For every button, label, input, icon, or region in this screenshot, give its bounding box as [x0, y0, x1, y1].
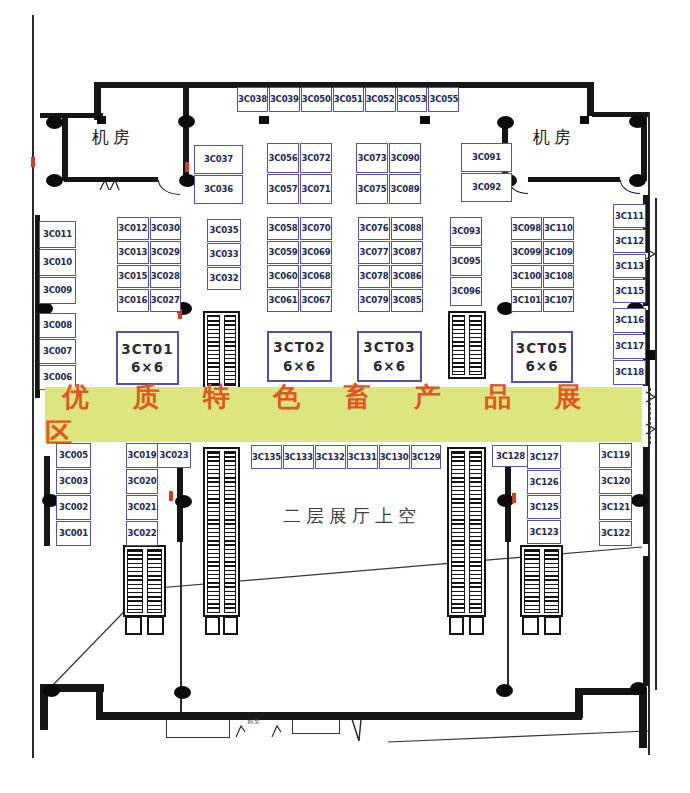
- booth-group: 3C111 3C112 3C113 3C115: [613, 204, 646, 303]
- column: [496, 684, 513, 697]
- booth-cell: 3C029: [150, 241, 182, 264]
- column: [46, 116, 63, 129]
- machine-room-label: 机房: [92, 126, 134, 149]
- booth-cell: 3C131: [347, 445, 378, 469]
- booth-cell: 3C077: [358, 241, 390, 264]
- escalator-base: [205, 616, 238, 635]
- fire-point-marker: [185, 162, 189, 172]
- booth-cell: 3C055: [428, 87, 459, 112]
- booth-cell: 3C003: [56, 469, 91, 494]
- booth-group: 3C073 3C090 3C075 3C089: [356, 143, 421, 204]
- booth-cell: 3C098: [511, 217, 542, 240]
- booth-cell: 3C127: [527, 445, 561, 469]
- booth-cell: 3C009: [39, 277, 76, 304]
- booth-group-top: 3C038 3C039 3C050 3C051 3C052 3C053 3C05…: [237, 87, 449, 112]
- column: [174, 686, 191, 699]
- booth-group: 3C093 3C095 3C096: [450, 217, 482, 306]
- booth-cell: 3C122: [599, 521, 632, 546]
- wall-stub: [580, 116, 589, 124]
- floor-plan: 机房 机房 3C038 3C039 3C050 3C051 3C052 3C05…: [0, 0, 690, 793]
- booth-cell: 3C078: [358, 265, 390, 288]
- booth-cell: 3C113: [613, 254, 646, 278]
- entry-recess: [166, 720, 230, 738]
- wall: [62, 117, 68, 181]
- column: [178, 115, 195, 128]
- column: [497, 116, 514, 129]
- booth-cell: 3C089: [389, 174, 421, 204]
- wall: [64, 177, 158, 182]
- booth-cell: 3C095: [450, 247, 482, 276]
- table-booth-id: 3CT05: [516, 339, 568, 357]
- booth-cell: 3C057: [267, 174, 299, 204]
- booth-cell: 3C036: [194, 175, 243, 204]
- booth-cell: 3C012: [117, 217, 149, 240]
- wall: [643, 556, 649, 686]
- booth-cell: 3C022: [126, 521, 158, 546]
- zone-banner: 优 质 特 色 畜 产 品 展 区: [45, 387, 642, 442]
- booth-cell: 3C015: [117, 265, 149, 288]
- escalator-base: [449, 616, 484, 635]
- booth-cell: 3C115: [613, 279, 646, 303]
- booth-cell: 3C133: [283, 445, 314, 469]
- booth-cell: 3C110: [543, 217, 574, 240]
- booth-cell: 3C002: [56, 495, 91, 520]
- vestibule-label: 前室: [247, 717, 260, 726]
- booth-cell: 3C021: [126, 495, 158, 520]
- booth-group: 3C076 3C088 3C077 3C087 3C078 3C086 3C07…: [358, 217, 423, 312]
- booth-cell: 3C007: [39, 339, 76, 364]
- booth-cell: 3C119: [599, 443, 632, 468]
- booth-cell: 3C073: [356, 143, 388, 173]
- table-booth: 3CT01 6×6: [116, 331, 179, 385]
- wall: [587, 82, 594, 116]
- booth-cell: 3C060: [267, 265, 299, 288]
- fire-point-marker: [31, 157, 35, 167]
- booth-cell: 3C001: [56, 521, 91, 546]
- booth-cell: 3C008: [39, 313, 76, 338]
- booth-cell: 3C120: [599, 469, 632, 494]
- booth-cell: 3C037: [194, 145, 243, 174]
- booth-cell: 3C125: [527, 495, 561, 519]
- booth-cell: 3C032: [207, 267, 241, 290]
- booth-cell: 3C085: [391, 289, 423, 312]
- booth-group: 3C035 3C033 3C032: [207, 219, 241, 290]
- booth-cell: 3C076: [358, 217, 390, 240]
- table-booth-size: 6×6: [131, 358, 164, 376]
- booth-cell: 3C038: [237, 87, 268, 112]
- table-booth: 3CT03 6×6: [357, 331, 422, 382]
- wall: [32, 15, 34, 758]
- booth-group: 3C011 3C010 3C009: [39, 221, 76, 304]
- booth-cell: 3C117: [613, 334, 646, 359]
- column: [43, 684, 60, 697]
- booth-group: 3C012 3C030 3C013 3C029 3C015 3C028 3C01…: [117, 217, 181, 312]
- booth-cell: 3C028: [150, 265, 182, 288]
- booth-cell: 3C059: [267, 241, 299, 264]
- void-label: 二层展厅上空: [283, 504, 421, 528]
- booth-cell: 3C068: [300, 265, 332, 288]
- column: [175, 495, 192, 508]
- booth-group: 3C127 3C126 3C125 3C123: [527, 445, 561, 544]
- booth-cell: 3C033: [207, 243, 241, 266]
- wall: [639, 688, 647, 748]
- booth-cell: 3C109: [543, 241, 574, 264]
- wall-stub: [645, 350, 655, 360]
- booth-cell: 3C132: [315, 445, 346, 469]
- booth-group: 3C019 3C020 3C021 3C022: [126, 443, 158, 546]
- booth-cell: 3C067: [300, 289, 332, 312]
- booth-cell: 3C116: [613, 308, 646, 333]
- wall: [655, 198, 657, 690]
- fire-point-marker: [169, 491, 173, 501]
- table-booth-id: 3CT01: [121, 340, 173, 358]
- wall-stub: [420, 116, 430, 124]
- escalator-icon: [203, 447, 240, 617]
- booth-cell: 3C072: [300, 143, 332, 173]
- booth-cell: 3C108: [543, 265, 574, 288]
- booth-cell: 3C058: [267, 217, 299, 240]
- booth-cell: 3C005: [56, 443, 91, 468]
- booth-group: 3C037 3C036: [194, 145, 243, 204]
- booth-group: 3C119 3C120 3C121 3C122: [599, 443, 632, 546]
- booth-cell: 3C069: [300, 241, 332, 264]
- escalator-icon: [123, 545, 166, 617]
- wall: [96, 712, 582, 720]
- table-booth-size: 6×6: [373, 357, 406, 375]
- booth-cell: 3C051: [333, 87, 364, 112]
- table-booth-size: 6×6: [525, 357, 558, 375]
- booth-cell: 3C096: [450, 277, 482, 306]
- booth-cell: 3C013: [117, 241, 149, 264]
- wall-stub: [259, 116, 269, 124]
- booth-cell: 3C050: [301, 87, 332, 112]
- booth-cell: 3C129: [411, 445, 442, 469]
- booth-group: 3C091 3C092: [461, 143, 512, 202]
- booth-cell: 3C020: [126, 469, 158, 494]
- booth-cell: 3C075: [356, 174, 388, 204]
- booth-cell: 3C099: [511, 241, 542, 264]
- booth-cell: 3C011: [39, 221, 76, 248]
- booth-cell: 3C016: [117, 289, 149, 312]
- escalator-icon: [447, 447, 486, 617]
- booth-cell: 3C027: [150, 289, 182, 312]
- booth-group: 3C005 3C003 3C002 3C001: [56, 443, 91, 546]
- door-swing-mark: [352, 719, 361, 741]
- booth-cell: 3C107: [543, 289, 574, 312]
- booth-group: 3C135 3C133 3C132 3C131 3C130 3C129: [251, 445, 438, 469]
- escalator-base: [522, 616, 561, 635]
- booth-cell: 3C019: [126, 443, 158, 468]
- booth-cell: 3C092: [461, 173, 512, 202]
- booth-cell: 3C052: [365, 87, 396, 112]
- escalator-icon: [520, 545, 563, 617]
- booth-cell: 3C053: [397, 87, 428, 112]
- escalator-icon: [448, 311, 486, 379]
- booth-cell: 3C100: [511, 265, 542, 288]
- booth-cell: 3C088: [391, 217, 423, 240]
- booth-cell: 3C126: [527, 470, 561, 494]
- table-booth-id: 3CT03: [363, 338, 415, 356]
- booth-group: 3C056 3C072 3C057 3C071: [267, 143, 332, 204]
- fire-point-marker: [512, 493, 516, 503]
- column: [46, 174, 63, 187]
- entry-recess: [292, 720, 340, 734]
- booth-cell: 3C071: [300, 174, 332, 204]
- booth-cell: 3C079: [358, 289, 390, 312]
- column: [630, 682, 647, 695]
- column: [629, 115, 646, 128]
- table-booth-size: 6×6: [283, 357, 316, 375]
- door-swing-mark: [236, 726, 281, 737]
- booth-cell: 3C123: [527, 520, 561, 544]
- booth-cell: 3C093: [450, 217, 482, 246]
- booth-cell: 3C087: [391, 241, 423, 264]
- booth-cell: 3C039: [269, 87, 300, 112]
- booth-cell: 3C112: [613, 229, 646, 253]
- booth-cell: 3C056: [267, 143, 299, 173]
- wall-dashed: [650, 388, 651, 444]
- table-booth-id: 3CT02: [273, 338, 325, 356]
- column: [631, 494, 648, 507]
- booth-cell: 3C128: [492, 445, 529, 467]
- booth-cell: 3C030: [150, 217, 182, 240]
- booth-cell: 3C061: [267, 289, 299, 312]
- wall: [507, 542, 509, 690]
- table-booth: 3CT05 6×6: [511, 331, 573, 383]
- machine-room-label: 机房: [533, 126, 575, 149]
- booth-group: 3C116 3C117 3C118: [613, 308, 646, 385]
- booth-cell: 3C121: [599, 495, 632, 520]
- booth-cell: 3C090: [389, 143, 421, 173]
- booth-cell: 3C070: [300, 217, 332, 240]
- booth-cell: 3C086: [391, 265, 423, 288]
- booth-cell: 3C010: [39, 249, 76, 276]
- wall-stub: [97, 116, 106, 124]
- booth-cell: 3C035: [207, 219, 241, 242]
- booth-cell: 3C023: [157, 443, 191, 468]
- booth-cell: 3C130: [379, 445, 410, 469]
- escalator-base: [125, 616, 164, 635]
- booth-cell: 3C091: [461, 143, 512, 172]
- booth-cell: 3C101: [511, 289, 542, 312]
- booth-group: 3C058 3C070 3C059 3C069 3C060 3C068 3C06…: [267, 217, 332, 312]
- booth-cell: 3C135: [251, 445, 282, 469]
- wall: [528, 177, 620, 182]
- table-booth: 3CT02 6×6: [267, 331, 332, 382]
- booth-cell: 3C111: [613, 204, 646, 228]
- booth-group: 3C098 3C110 3C099 3C109 3C100 3C108 3C10…: [511, 217, 569, 312]
